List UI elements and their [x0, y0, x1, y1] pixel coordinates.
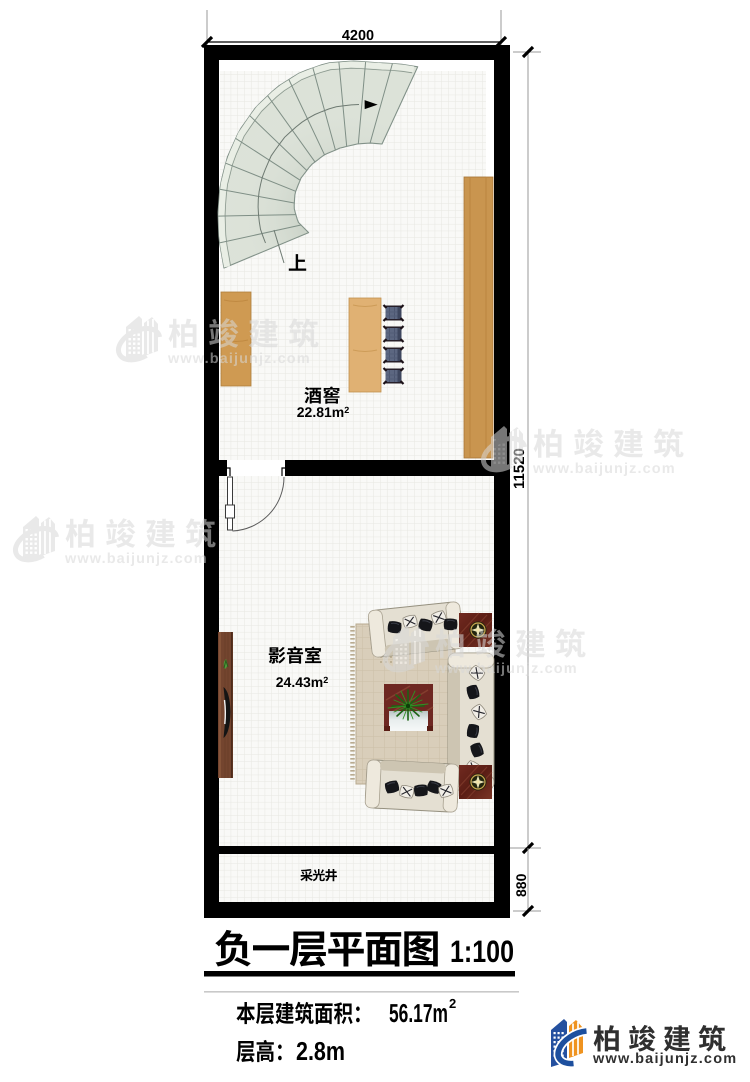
svg-text:1:100: 1:100: [450, 934, 514, 969]
svg-text:24.43m2: 24.43m2: [276, 674, 329, 690]
svg-text:22.81m2: 22.81m2: [297, 404, 350, 420]
svg-text:4200: 4200: [342, 28, 374, 44]
svg-text:2: 2: [449, 996, 456, 1011]
svg-text:880: 880: [513, 873, 529, 897]
svg-text:56.17m: 56.17m: [389, 998, 448, 1028]
svg-text:www.baijunjz.com: www.baijunjz.com: [592, 1051, 737, 1067]
svg-text:2.8m: 2.8m: [296, 1036, 345, 1066]
